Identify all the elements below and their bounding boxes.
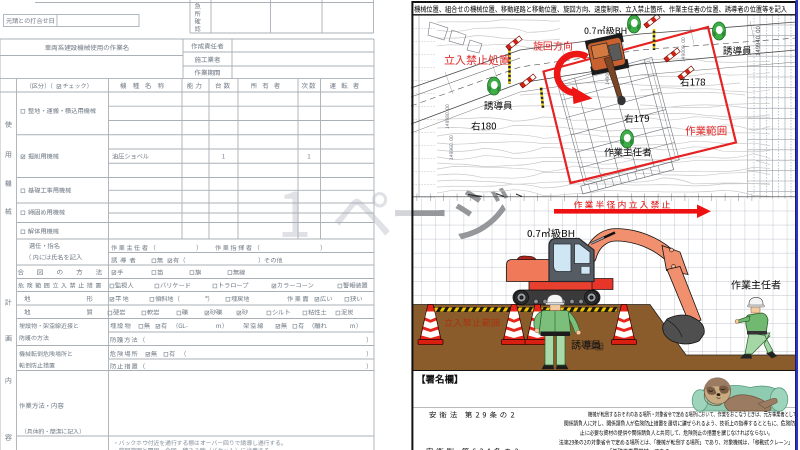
svg-text:埋戻地: 埋戻地 xyxy=(231,294,250,303)
svg-text:合図の方法: 合図の方法 xyxy=(18,266,116,276)
svg-text:粘性土: 粘性土 xyxy=(308,308,327,317)
svg-text:機: 機 xyxy=(5,179,13,189)
svg-text:）その他: ）その他 xyxy=(258,256,284,265)
svg-text:149940. 00: 149940. 00 xyxy=(753,26,762,56)
svg-text:機械位置、組合せの機械位置、移動経路と移動位置、旋回方向、速: 機械位置、組合せの機械位置、移動経路と移動位置、旋回方向、速度制限、立入禁止箇所… xyxy=(414,4,787,15)
svg-text:1: 1 xyxy=(307,152,311,161)
svg-text:法第29条の2の対象省令で定める場所とは、「機械が転倒する場: 法第29条の2の対象省令で定める場所とは、「機械が転倒する場所」であり、対象機械… xyxy=(558,438,793,447)
svg-text:使: 使 xyxy=(5,120,12,130)
svg-text:地質: 地質 xyxy=(24,307,149,317)
svg-text:手: 手 xyxy=(117,267,124,276)
svg-text:作業方法・内容: 作業方法・内容 xyxy=(19,401,64,410)
svg-text:選任・指名: 選任・指名 xyxy=(29,241,60,250)
svg-text:（ 内には氏名を記入: （ 内には氏名を記入 xyxy=(25,253,83,262)
svg-text:作業面: 作業面 xyxy=(287,294,310,303)
svg-text:運転者: 運転者 xyxy=(330,80,365,90)
svg-text:無: 無 xyxy=(144,321,150,330)
svg-text:149000. 00: 149000. 00 xyxy=(680,37,687,62)
svg-text:関係請負人に対し、関係請負人が危険防止措置を適切に講ぜられる: 関係請負人に対し、関係請負人が危険防止措置を適切に講ぜられるよう、技術上の指導す… xyxy=(564,419,795,428)
svg-text:締固め用機械: 締固め用機械 xyxy=(28,208,65,217)
svg-text:用: 用 xyxy=(5,150,12,160)
svg-text:作成責任者: 作成責任者 xyxy=(191,41,224,51)
svg-text:作業主任者: 作業主任者 xyxy=(604,145,652,159)
svg-text:°）: °） xyxy=(205,294,214,303)
svg-text:作業主任者（: 作業主任者（ xyxy=(111,243,157,252)
svg-text:チェック）: チェック） xyxy=(63,81,93,90)
svg-text:シルト: シルト xyxy=(272,308,291,317)
svg-text:施工業者: 施工業者 xyxy=(195,54,222,64)
svg-text:能力: 能力 xyxy=(187,80,204,90)
svg-text:149960. 00: 149960. 00 xyxy=(448,135,455,160)
svg-text:有: 有 xyxy=(169,349,175,358)
svg-text:バリケード: バリケード xyxy=(160,281,191,290)
svg-text:掘削用機械: 掘削用機械 xyxy=(28,152,59,161)
svg-text:旋回方向: 旋回方向 xyxy=(533,38,573,53)
svg-text:【署名欄】: 【署名欄】 xyxy=(416,372,464,386)
svg-text:・旋回範囲と関固・全回、積込み時（バケット）に注意する。: ・旋回範囲と関固・全回、積込み時（バケット）に注意する。 xyxy=(113,446,275,450)
svg-text:監視人: 監視人 xyxy=(115,281,134,290)
svg-text:立入禁止範囲: 立入禁止範囲 xyxy=(444,316,500,329)
svg-text:広い: 広い xyxy=(320,294,333,303)
svg-text:内: 内 xyxy=(5,376,12,386)
svg-text:トラロープ: トラロープ xyxy=(218,281,249,290)
svg-text:計: 計 xyxy=(5,298,12,308)
svg-text:有: 有 xyxy=(161,321,167,330)
svg-text:）: ） xyxy=(366,362,372,371)
svg-text:作業期間: 作業期間 xyxy=(195,67,221,77)
svg-text:カラーコーン: カラーコーン xyxy=(277,281,314,290)
svg-text:作業半径内立入禁止: 作業半径内立入禁止 xyxy=(574,198,671,211)
svg-text:）: ） xyxy=(196,243,202,252)
svg-text:転倒防止措置: 転倒防止措置 xyxy=(19,361,55,370)
svg-text:埋設物・架空線近接と: 埋設物・架空線近接と xyxy=(19,321,79,330)
svg-text:狭い: 狭い xyxy=(349,294,363,303)
svg-text:）: ） xyxy=(366,349,372,358)
svg-text:泥炭: 泥炭 xyxy=(341,308,354,317)
svg-text:砂礫: 砂礫 xyxy=(209,308,223,317)
svg-text:解体用機械: 解体用機械 xyxy=(27,227,59,236)
svg-text:機械転倒危険場所と: 機械転倒危険場所と xyxy=(19,349,73,358)
svg-text:認: 認 xyxy=(195,24,202,33)
svg-text:砂: 砂 xyxy=(241,308,249,317)
svg-text:右180: 右180 xyxy=(471,119,496,133)
svg-text:台数: 台数 xyxy=(214,80,232,90)
svg-text:硬岩: 硬岩 xyxy=(112,308,125,317)
svg-text:埋設物: 埋設物 xyxy=(110,321,132,330)
svg-text:機種名称: 機種名称 xyxy=(120,80,170,90)
svg-text:次数: 次数 xyxy=(301,80,317,90)
svg-text:車両系建設機械使用の作業名: 車両系建設機械使用の作業名 xyxy=(45,42,130,52)
svg-text:旗: 旗 xyxy=(195,267,202,276)
svg-text:m）: m） xyxy=(350,321,362,330)
svg-text:油圧ショベル: 油圧ショベル xyxy=(112,152,149,161)
svg-text:画: 画 xyxy=(5,334,12,344)
svg-text:防護の方法: 防護の方法 xyxy=(19,333,49,342)
svg-text:誘導員: 誘導員 xyxy=(484,98,513,112)
svg-text:（区分）（: （区分）（ xyxy=(26,81,53,90)
svg-text:安衛法 第29条の2: 安衛法 第29条の2 xyxy=(429,410,517,421)
svg-text:有（: 有（ xyxy=(173,256,185,265)
svg-text:危険場所: 危険場所 xyxy=(110,349,139,358)
svg-text:有: 有 xyxy=(298,321,304,330)
svg-text:「基礎工事用機械」である。: 「基礎工事用機械」である。 xyxy=(607,447,675,450)
svg-text:整地・運搬・積込用機械: 整地・運搬・積込用機械 xyxy=(28,106,96,115)
svg-text:無: 無 xyxy=(151,349,157,358)
svg-text:危険範囲立入禁止措置: 危険範囲立入禁止措置 xyxy=(18,281,104,290)
svg-text:（離れ: （離れ xyxy=(308,321,327,330)
svg-text:（: （ xyxy=(180,349,186,358)
svg-text:無: 無 xyxy=(157,256,163,265)
svg-text:作業主任者: 作業主任者 xyxy=(731,277,781,292)
svg-text:機械が転倒するおそれのある場所・対象省令で定める場所において: 機械が転倒するおそれのある場所・対象省令で定める場所において、作業をおこなうとき… xyxy=(588,410,797,419)
svg-text:笛: 笛 xyxy=(157,267,164,276)
svg-text:無線: 無線 xyxy=(233,267,246,276)
svg-text:元請との打合せ日: 元請との打合せ日 xyxy=(6,16,55,25)
svg-text:所有者: 所有者 xyxy=(250,80,286,90)
svg-text:防止措置（: 防止措置（ xyxy=(110,362,146,371)
svg-text:止に必要な資材の提供や関係請負人と共同して、危険防止の措置を: 止に必要な資材の提供や関係請負人と共同して、危険防止の措置を講じなければならない… xyxy=(580,428,773,437)
svg-text:m）: m） xyxy=(216,321,228,330)
svg-text:無: 無 xyxy=(281,321,287,330)
svg-text:防護方法（: 防護方法（ xyxy=(110,335,146,344)
svg-text:傾斜地（: 傾斜地（ xyxy=(155,294,180,303)
svg-text:1: 1 xyxy=(222,152,226,161)
svg-text:安衛則 第634条の2: 安衛則 第634条の2 xyxy=(426,446,522,450)
svg-text:平地: 平地 xyxy=(115,294,130,303)
svg-text:作業指揮者（: 作業指揮者（ xyxy=(215,243,261,252)
svg-text:0.7㎥級BH: 0.7㎥級BH xyxy=(527,225,575,240)
svg-text:（GL-: （GL- xyxy=(172,321,188,330)
svg-text:誘導者: 誘導者 xyxy=(111,256,139,265)
svg-text:（具体的・簡潔に記入）: （具体的・簡潔に記入） xyxy=(21,427,85,436)
svg-text:械: 械 xyxy=(5,207,13,217)
svg-text:立入禁止処置: 立入禁止処置 xyxy=(444,52,510,68)
svg-text:）: ） xyxy=(366,335,372,344)
svg-text:架空線: 架空線 xyxy=(243,321,265,330)
svg-text:0.7㎥級BH: 0.7㎥級BH xyxy=(584,24,627,37)
svg-text:礫: 礫 xyxy=(182,308,189,317)
svg-text:右178: 右178 xyxy=(680,75,705,89)
svg-text:右179: 右179 xyxy=(624,111,649,125)
svg-text:軟岩: 軟岩 xyxy=(147,308,159,317)
svg-text:警報装置: 警報装置 xyxy=(343,281,368,290)
svg-text:基礎工事用機械: 基礎工事用機械 xyxy=(27,186,71,195)
svg-text:誘導員: 誘導員 xyxy=(571,337,601,352)
svg-text:149980. 00: 149980. 00 xyxy=(444,104,451,129)
svg-text:容: 容 xyxy=(5,433,12,443)
svg-text:誘導員: 誘導員 xyxy=(723,43,752,57)
svg-text:作業範囲: 作業範囲 xyxy=(685,124,727,139)
svg-text:）: ） xyxy=(320,243,326,252)
